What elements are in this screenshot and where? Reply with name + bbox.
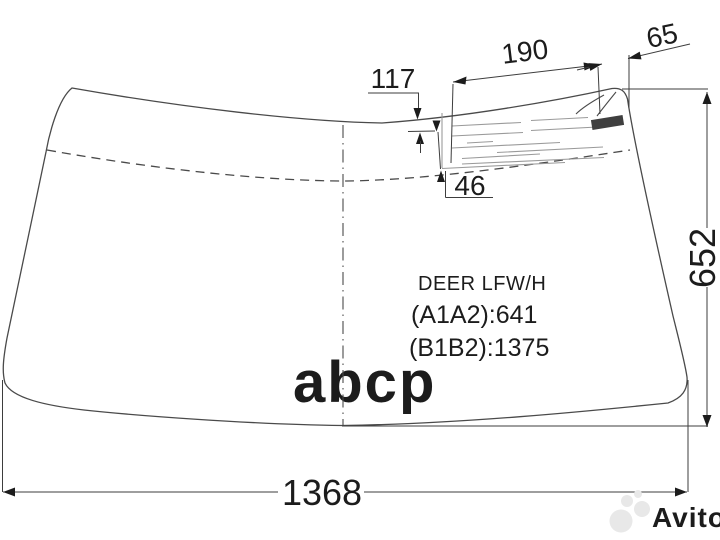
- dim-65-arrow-right: [628, 52, 642, 60]
- label-dark-mark: [591, 115, 624, 130]
- dim-1368-arrow-left: [3, 488, 15, 497]
- label-print-lines: [442, 118, 607, 169]
- avito-logo-icon: [610, 490, 651, 533]
- technical-drawing: abcp: [0, 0, 720, 540]
- part-spec-a: (A1A2):641: [411, 301, 537, 329]
- dim-190-value: 190: [500, 33, 550, 69]
- dim-190-ext-left: [451, 84, 453, 163]
- part-code-line1: DEER LFW/H: [418, 273, 546, 295]
- windshield-diagram-canvas: abcp: [0, 0, 720, 540]
- dim-65-arrow-left: [589, 63, 603, 71]
- dim-652-arrow-down: [703, 415, 712, 427]
- dim-117-arrow-down: [414, 108, 422, 120]
- dim-46-arrow-down: [433, 121, 441, 132]
- dim-1368-value: 1368: [282, 472, 362, 513]
- corner-detail-curve: [576, 92, 616, 116]
- dim-190-arrow-left: [453, 77, 467, 85]
- dim-190-line: [453, 65, 597, 82]
- dim-46-value: 46: [454, 170, 485, 201]
- dim-652-arrow-up: [703, 92, 712, 104]
- dim-46-arrow-up: [437, 171, 445, 183]
- part-spec-b: (B1B2):1375: [409, 334, 549, 362]
- dim-652-value: 652: [682, 228, 720, 288]
- frit-band-dashed-line: [47, 150, 630, 181]
- dim-1368-arrow-right: [675, 488, 687, 497]
- dim-117-value: 117: [371, 63, 416, 94]
- dim-46-ext: [438, 132, 441, 169]
- dim-65-value: 65: [644, 17, 681, 54]
- dim-117-leader: [368, 93, 419, 109]
- avito-watermark: Avito: [610, 490, 720, 533]
- avito-watermark-text: Avito: [652, 502, 720, 533]
